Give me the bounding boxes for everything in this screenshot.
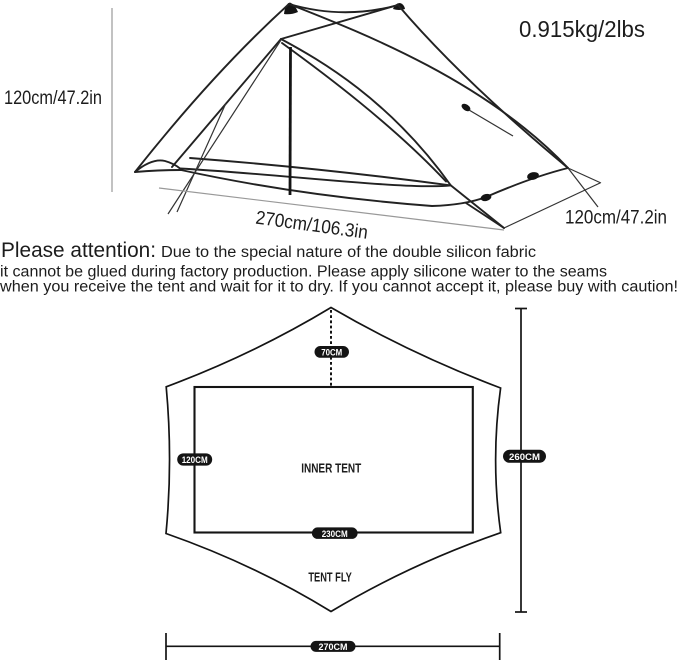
svg-text:when you receive the tent and: when you receive the tent and wait for i… — [0, 279, 678, 296]
svg-text:270cm/106.3in: 270cm/106.3in — [254, 208, 369, 244]
svg-text:270CM: 270CM — [319, 642, 348, 653]
svg-text:120cm/47.2in: 120cm/47.2in — [4, 88, 102, 109]
svg-text:260CM: 260CM — [509, 452, 540, 463]
svg-text:120CM: 120CM — [182, 455, 208, 466]
svg-text:INNER TENT: INNER TENT — [301, 461, 361, 476]
svg-text:70CM: 70CM — [321, 347, 342, 358]
svg-text:120cm/47.2in: 120cm/47.2in — [565, 208, 667, 229]
svg-text:TENT FLY: TENT FLY — [308, 570, 352, 585]
svg-text:Due to the special nature of t: Due to the special nature of the double … — [161, 244, 536, 261]
svg-text:0.915kg/2lbs: 0.915kg/2lbs — [519, 16, 645, 42]
svg-text:Please attention:: Please attention: — [1, 238, 156, 262]
svg-text:230CM: 230CM — [322, 529, 348, 540]
